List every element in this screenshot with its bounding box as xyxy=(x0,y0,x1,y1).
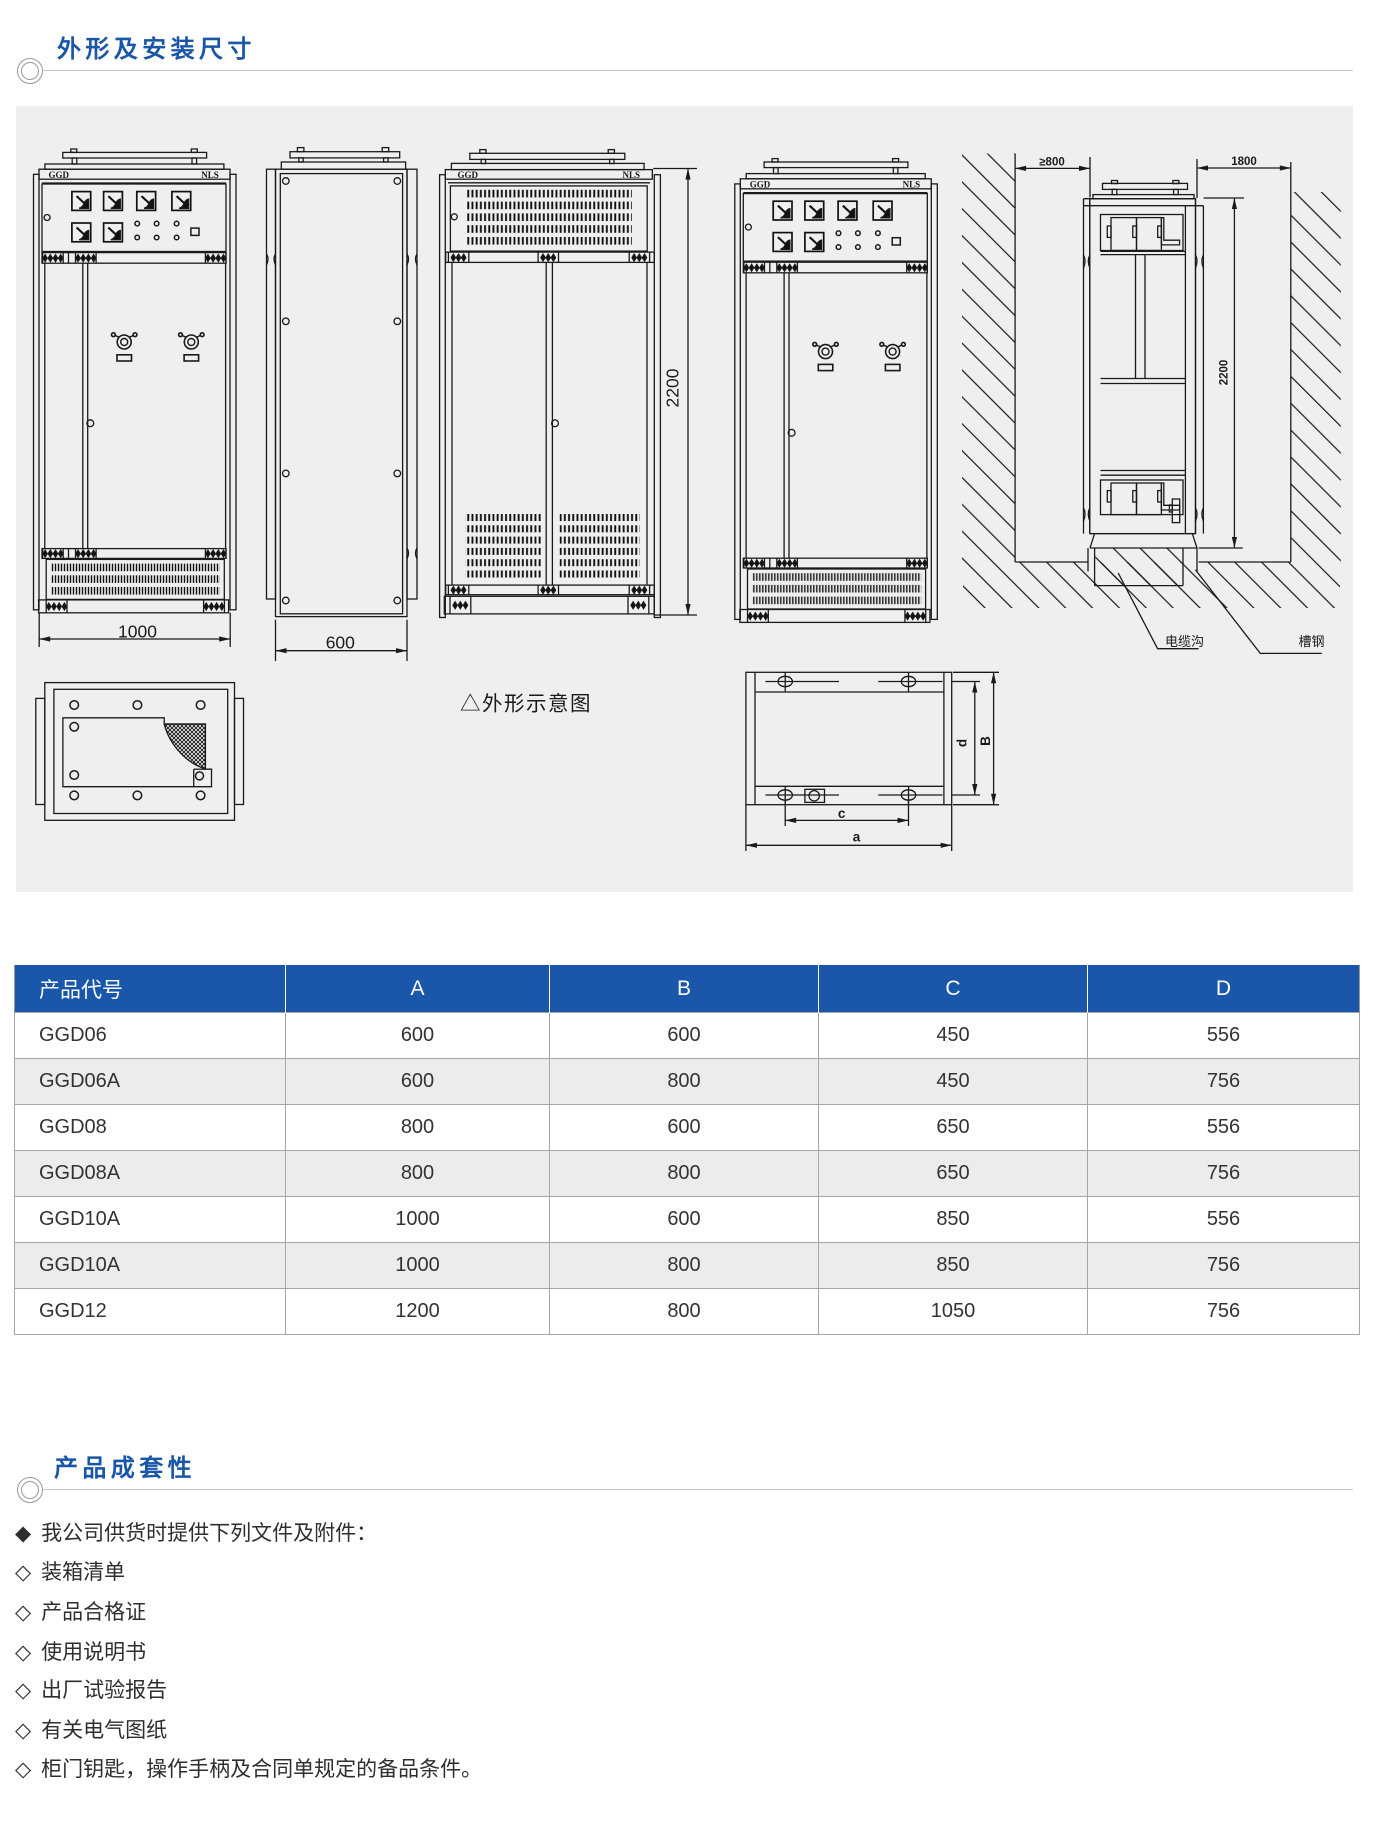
svg-text:2200: 2200 xyxy=(663,368,683,407)
svg-text:GGD: GGD xyxy=(49,170,70,180)
svg-text:1800: 1800 xyxy=(1231,156,1257,168)
svg-text:600: 600 xyxy=(326,633,355,653)
svg-text:1000: 1000 xyxy=(118,621,157,641)
svg-text:B: B xyxy=(978,736,993,746)
svg-text:c: c xyxy=(838,806,846,821)
svg-text:NLS: NLS xyxy=(622,170,640,180)
svg-text:a: a xyxy=(853,830,861,845)
svg-text:电缆沟: 电缆沟 xyxy=(1165,634,1204,649)
svg-text:2200: 2200 xyxy=(1219,360,1231,386)
svg-text:GGD: GGD xyxy=(458,170,479,180)
svg-text:≥800: ≥800 xyxy=(1039,156,1065,168)
svg-text:d: d xyxy=(955,739,970,747)
svg-text:槽钢: 槽钢 xyxy=(1298,634,1324,649)
svg-text:NLS: NLS xyxy=(201,170,219,180)
svg-text:△外形示意图: △外形示意图 xyxy=(460,693,592,716)
